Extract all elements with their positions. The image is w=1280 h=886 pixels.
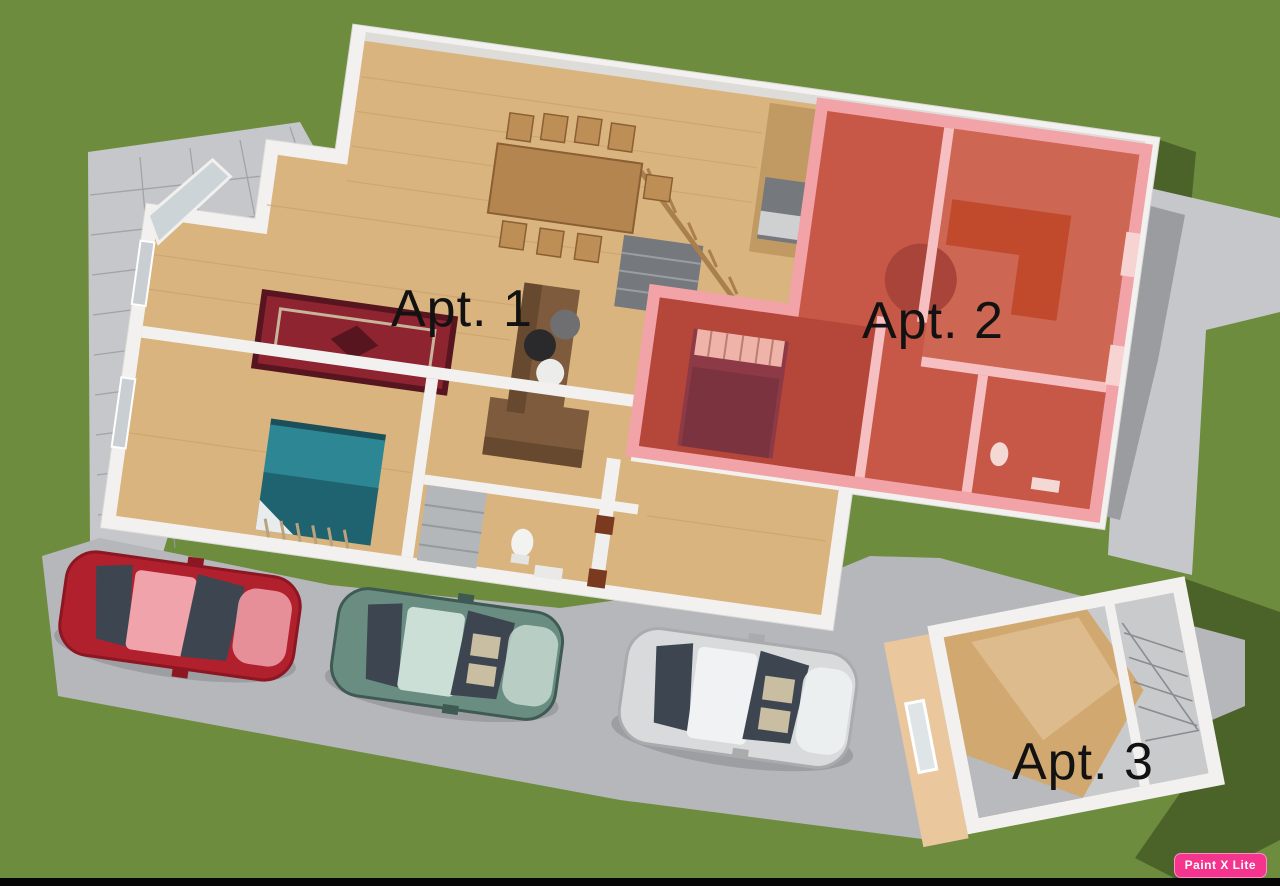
- paint-x-lite-watermark: Paint X Lite: [1174, 853, 1267, 878]
- floorplan-scene: Apt. 1 Apt. 2 Apt. 3 Paint X Lite: [0, 0, 1280, 886]
- bottom-bar: [0, 878, 1280, 886]
- apt-3-label: Apt. 3: [1012, 732, 1154, 792]
- apt-1-label: Apt. 1: [391, 279, 533, 339]
- teal-bed: [256, 419, 386, 546]
- apt-2-label: Apt. 2: [862, 291, 1004, 351]
- apt2-bed: [677, 328, 788, 458]
